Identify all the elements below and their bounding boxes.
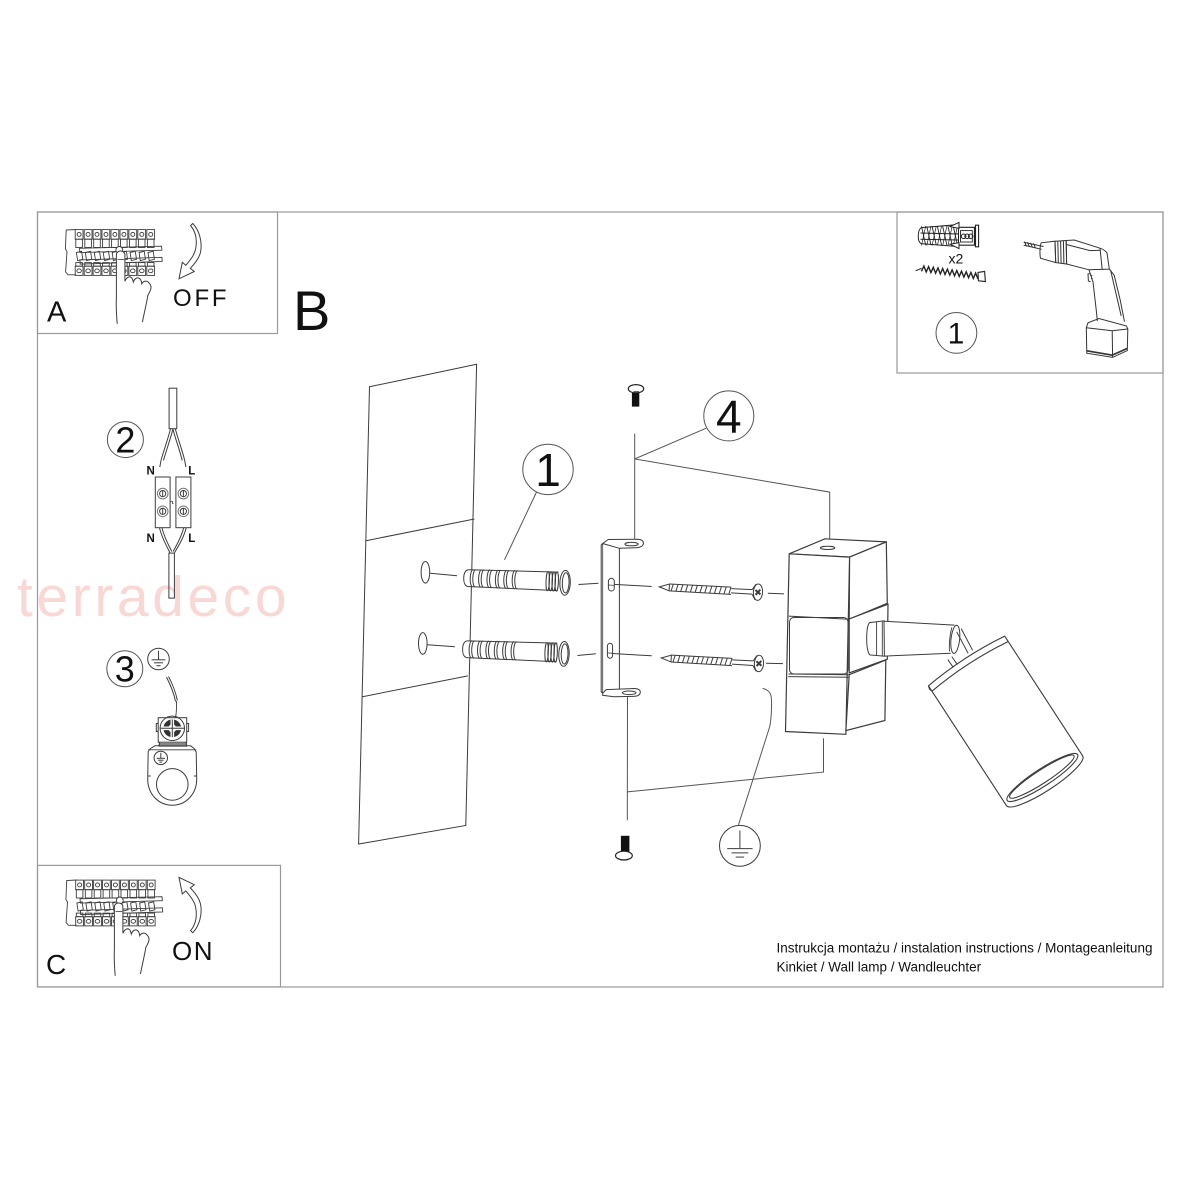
svg-text:terradeco: terradeco (17, 565, 290, 629)
svg-text:L: L (188, 533, 195, 545)
svg-text:Instrukcja montażu / instalati: Instrukcja montażu / instalation instruc… (777, 941, 1153, 956)
svg-text:OFF: OFF (173, 285, 229, 312)
svg-text:L: L (188, 466, 195, 478)
svg-text:4: 4 (716, 390, 742, 442)
svg-text:A: A (47, 297, 67, 329)
svg-text:Kinkiet / Wall lamp / Wandleuc: Kinkiet / Wall lamp / Wandleuchter (777, 960, 982, 975)
svg-text:1: 1 (535, 444, 561, 496)
svg-text:N: N (147, 533, 155, 545)
svg-text:1: 1 (948, 318, 965, 351)
svg-text:C: C (46, 949, 66, 980)
svg-text:x2: x2 (949, 251, 964, 267)
svg-text:2: 2 (115, 419, 135, 460)
svg-text:N: N (147, 466, 155, 478)
svg-text:3: 3 (115, 649, 135, 690)
svg-text:B: B (293, 279, 330, 342)
svg-text:ON: ON (172, 936, 214, 966)
